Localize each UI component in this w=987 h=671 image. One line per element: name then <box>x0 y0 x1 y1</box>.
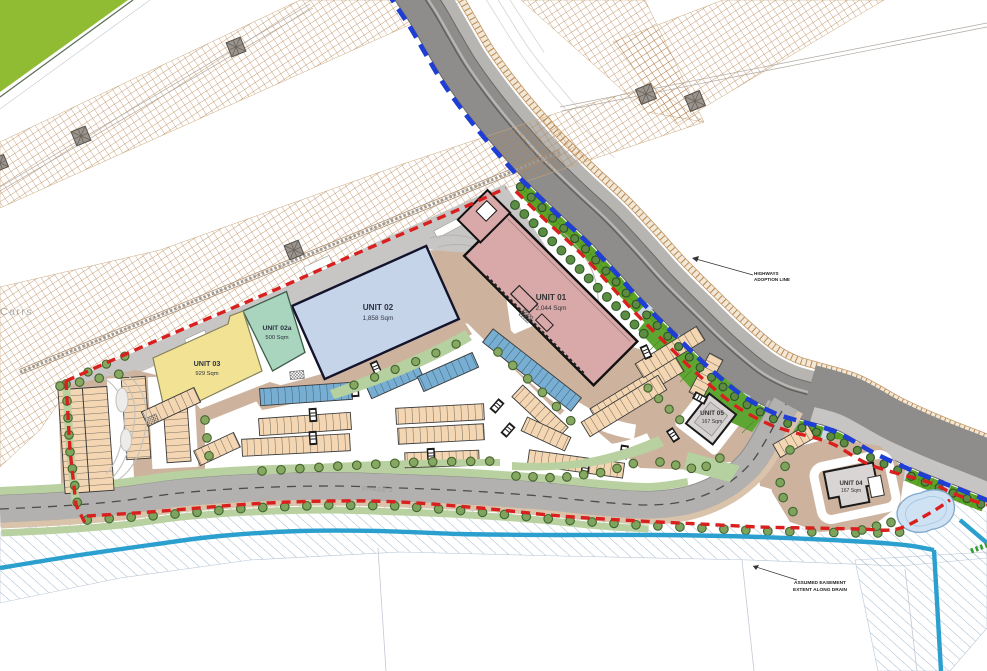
svg-text:UNIT 04: UNIT 04 <box>839 480 863 487</box>
svg-text:UNIT 01: UNIT 01 <box>536 293 567 302</box>
svg-text:UNIT 03: UNIT 03 <box>194 359 221 368</box>
svg-text:1,858 Sqm: 1,858 Sqm <box>363 315 394 322</box>
svg-text:PHASE 2: PHASE 2 <box>362 486 393 494</box>
svg-text:UNIT 05: UNIT 05 <box>700 410 724 417</box>
svg-text:929 Sqm: 929 Sqm <box>195 371 218 377</box>
svg-text:167 Sqm: 167 Sqm <box>702 419 723 425</box>
svg-text:500 Sqm: 500 Sqm <box>265 335 288 341</box>
svg-text:UNIT 02a: UNIT 02a <box>262 325 291 332</box>
svg-text:2,044 Sqm: 2,044 Sqm <box>536 305 567 312</box>
svg-text:HIGHWAYS: HIGHWAYS <box>754 271 779 276</box>
svg-text:EXTENT ALONG DRAIN: EXTENT ALONG DRAIN <box>793 587 847 593</box>
svg-text:ASSUMED EASEMENT: ASSUMED EASEMENT <box>794 580 846 586</box>
svg-text:UNIT 02: UNIT 02 <box>363 303 394 312</box>
svg-text:167 Sqm: 167 Sqm <box>841 488 861 494</box>
svg-text:ADOPTION LINE: ADOPTION LINE <box>754 277 790 282</box>
svg-text:Carrs: Carrs <box>0 306 33 318</box>
